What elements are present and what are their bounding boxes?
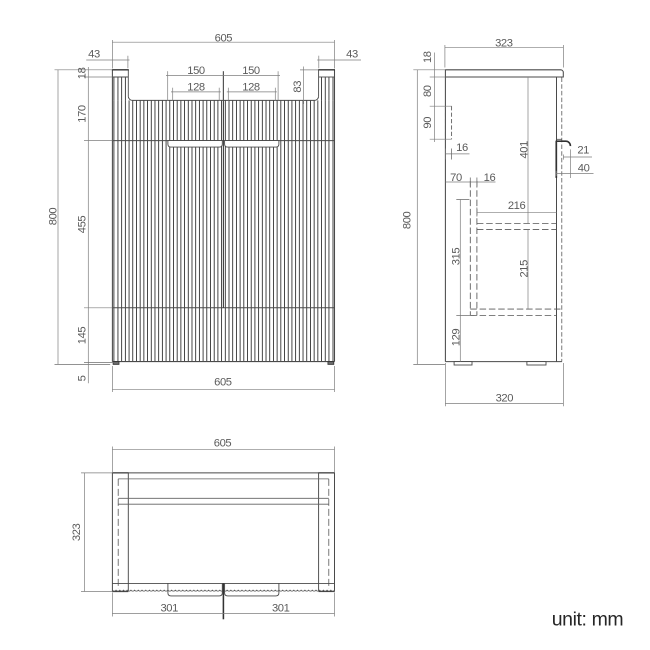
svg-text:43: 43 bbox=[346, 49, 358, 61]
svg-text:301: 301 bbox=[272, 602, 290, 614]
svg-text:128: 128 bbox=[242, 81, 260, 93]
svg-text:128: 128 bbox=[187, 81, 205, 93]
svg-text:5: 5 bbox=[76, 375, 88, 381]
svg-text:605: 605 bbox=[214, 376, 232, 388]
svg-text:170: 170 bbox=[76, 105, 88, 123]
svg-text:455: 455 bbox=[76, 216, 88, 234]
svg-text:18: 18 bbox=[422, 51, 434, 63]
svg-text:43: 43 bbox=[88, 49, 100, 61]
svg-text:16: 16 bbox=[456, 142, 468, 154]
svg-text:605: 605 bbox=[214, 437, 232, 449]
svg-text:83: 83 bbox=[292, 81, 304, 93]
svg-text:16: 16 bbox=[484, 172, 496, 184]
svg-text:80: 80 bbox=[422, 85, 434, 97]
svg-text:401: 401 bbox=[518, 141, 530, 159]
svg-text:216: 216 bbox=[508, 200, 526, 212]
svg-text:150: 150 bbox=[242, 65, 260, 77]
svg-text:90: 90 bbox=[422, 117, 434, 129]
svg-text:70: 70 bbox=[450, 172, 462, 184]
svg-text:315: 315 bbox=[451, 248, 463, 266]
svg-text:800: 800 bbox=[47, 208, 59, 226]
svg-text:150: 150 bbox=[187, 65, 205, 77]
svg-text:145: 145 bbox=[76, 327, 88, 345]
svg-text:605: 605 bbox=[215, 32, 233, 44]
svg-text:323: 323 bbox=[71, 523, 83, 541]
svg-text:301: 301 bbox=[160, 602, 178, 614]
svg-text:323: 323 bbox=[495, 37, 513, 49]
svg-text:unit: mm: unit: mm bbox=[552, 609, 624, 631]
svg-text:21: 21 bbox=[577, 145, 589, 157]
svg-text:18: 18 bbox=[76, 67, 88, 79]
svg-text:800: 800 bbox=[402, 211, 414, 229]
svg-text:129: 129 bbox=[451, 329, 463, 347]
svg-text:320: 320 bbox=[496, 392, 514, 404]
svg-text:40: 40 bbox=[578, 162, 590, 174]
svg-text:215: 215 bbox=[518, 260, 530, 278]
